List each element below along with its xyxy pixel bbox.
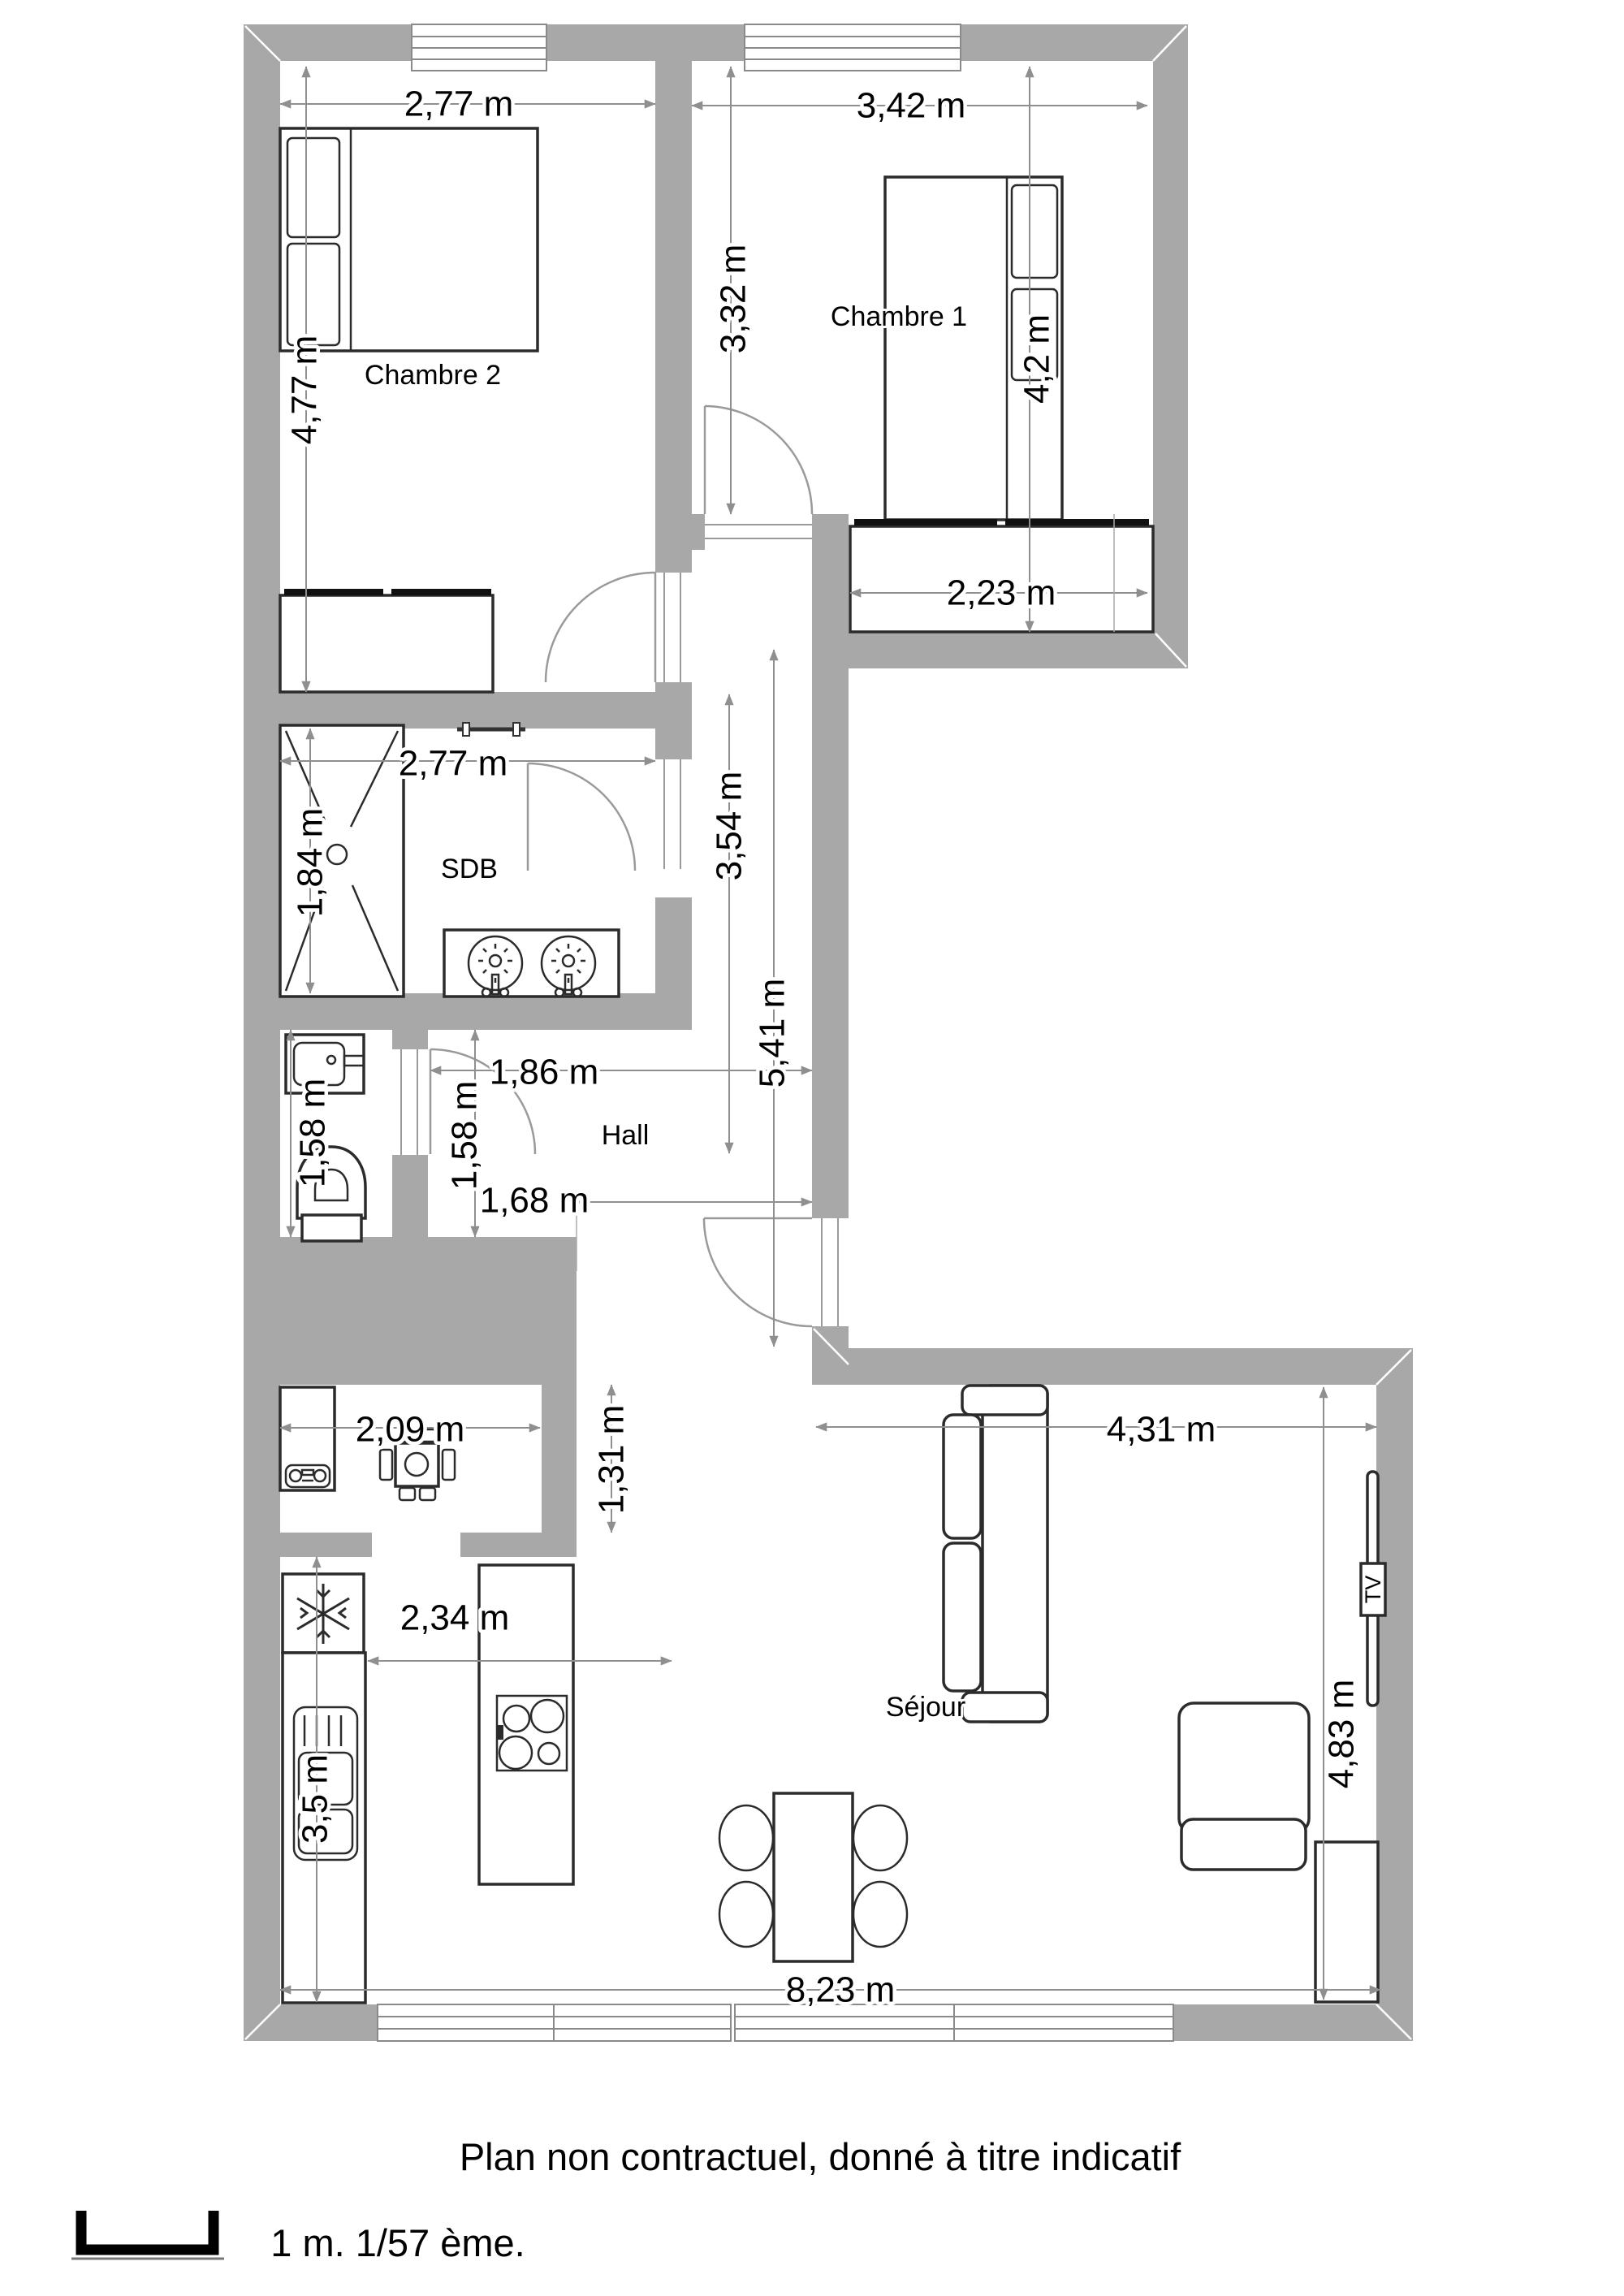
dim-sdb-width: 2,77 m <box>399 744 508 784</box>
dim-annex-height: 1,31 m <box>592 1405 632 1515</box>
wall-sejour-top <box>849 1348 1413 1385</box>
dim-corridor: 3,54 m <box>710 772 749 881</box>
sdb-door <box>528 759 692 871</box>
wall-corridor-east-upper <box>812 514 849 1218</box>
room-label-chambre2: Chambre 2 <box>365 360 501 391</box>
dim-kitchen-height: 3,5 m <box>296 1754 335 1844</box>
wall-hall-top <box>244 993 692 1030</box>
floor-plan: TV 2,77 m 3,42 m 4,77 m <box>0 0 1624 2296</box>
wall-mid-upper <box>655 61 692 573</box>
dim-hall-opening: 1,68 m <box>480 1181 590 1221</box>
window-icon-kitchen <box>378 2004 731 2041</box>
entrance-door <box>704 1218 849 1326</box>
chambre2-door <box>546 573 680 682</box>
wall-bottom-right <box>1173 2004 1413 2041</box>
chambre1-door <box>705 406 812 538</box>
wall-chambre1-bottom-jamb <box>692 514 705 550</box>
wall-top <box>244 24 1188 61</box>
wall-top-block-bottom <box>812 632 1188 668</box>
dim-ch1-height: 3,32 m <box>714 244 754 354</box>
water-heater-icon <box>280 1387 335 1490</box>
dim-wc-height: 1,58 m <box>293 1079 333 1188</box>
wardrobe-icon <box>280 592 493 692</box>
wall-wc-east-lower <box>392 1155 428 1237</box>
wall-corridor-east-lower <box>812 1326 849 1385</box>
dim-sejour-width: 4,31 m <box>1107 1410 1216 1450</box>
wall-sejour-right <box>1376 1348 1413 2041</box>
room-label-chambre1: Chambre 1 <box>831 301 967 332</box>
dim-annex-width: 2,09 m <box>356 1410 465 1450</box>
armchair-icon <box>1179 1703 1309 1870</box>
room-label-sdb: SDB <box>441 854 498 884</box>
window-icon-chambre1 <box>745 24 961 71</box>
dim-kitchen-width: 2,34 m <box>400 1598 510 1638</box>
dim-hall-width: 1,86 m <box>490 1053 599 1092</box>
dim-ch2-width: 2,77 m <box>404 84 514 124</box>
window-icon-chambre2 <box>412 24 546 71</box>
dim-hall-height: 1,58 m <box>445 1081 485 1191</box>
sofa-icon <box>944 1386 1047 1722</box>
wall-wc-east-upper <box>392 1030 428 1049</box>
dim-shower: 1,84 m <box>291 808 330 918</box>
dim-total-width: 8,23 m <box>786 1970 896 2010</box>
wall-sdb-top <box>244 692 655 729</box>
wall-right-top-block <box>1153 24 1188 668</box>
dim-hall-length: 5,41 m <box>753 979 793 1088</box>
room-label-hall: Hall <box>602 1120 650 1151</box>
tv-label: TV <box>1361 1576 1385 1604</box>
plan-caption: Plan non contractuel, donné à titre indi… <box>460 2135 1181 2178</box>
double-washbasin-icon <box>444 930 619 997</box>
footer: Plan non contractuel, donné à titre indi… <box>71 2135 1181 2264</box>
room-label-sejour: Séjour <box>886 1692 965 1723</box>
wall-annex-bottom-left <box>244 1533 372 1557</box>
dim-closet: 2,23 m <box>947 573 1056 613</box>
scale-note: 1 m. 1/57 ème. <box>270 2221 525 2264</box>
wall-annex-bottom-right <box>460 1533 577 1557</box>
wall-annex-east <box>542 1385 577 1533</box>
wall-bottom-left <box>244 2004 378 2041</box>
wall-left <box>244 24 280 2041</box>
dining-table-icon <box>774 1793 853 1961</box>
wall-slab-entry <box>244 1237 577 1385</box>
dim-ch2-height: 4,77 m <box>285 335 325 445</box>
scale-bar-icon <box>71 2211 224 2259</box>
sideboard-icon <box>1315 1842 1378 2002</box>
fridge-icon <box>283 1574 364 1653</box>
dim-ch1-bed: 4,2 m <box>1017 314 1057 404</box>
dim-sejour-height: 4,83 m <box>1322 1680 1362 1789</box>
window-icon-sejour <box>735 2004 1173 2041</box>
double-bed-icon-chambre2 <box>280 128 538 351</box>
dim-ch1-width: 3,42 m <box>857 86 966 126</box>
